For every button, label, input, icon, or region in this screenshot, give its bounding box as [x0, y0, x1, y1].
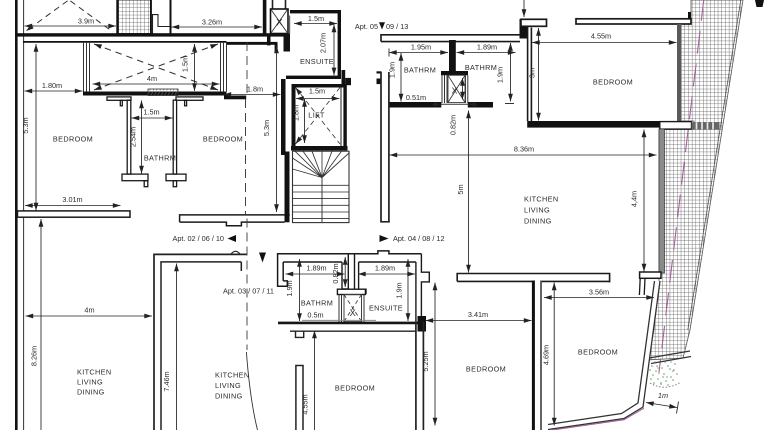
- svg-text:DINING: DINING: [215, 391, 243, 400]
- svg-text:1.89m: 1.89m: [306, 264, 326, 273]
- svg-text:LIVING: LIVING: [524, 206, 550, 215]
- svg-text:0.82m: 0.82m: [449, 115, 458, 135]
- svg-text:ENSUITE: ENSUITE: [300, 57, 334, 66]
- svg-text:1.9m: 1.9m: [395, 282, 404, 298]
- svg-text:8.36m: 8.36m: [514, 145, 534, 154]
- svg-text:0.82m: 0.82m: [331, 263, 340, 283]
- svg-text:3.01m: 3.01m: [62, 195, 82, 204]
- svg-text:4.69m: 4.69m: [542, 345, 551, 365]
- svg-text:1.9m: 1.9m: [388, 62, 397, 78]
- svg-text:X: X: [276, 18, 283, 29]
- svg-text:ENSUITE: ENSUITE: [369, 304, 403, 313]
- svg-text:3m: 3m: [528, 68, 537, 78]
- svg-text:BEDROOM: BEDROOM: [203, 135, 243, 144]
- svg-text:09 / 13: 09 / 13: [386, 22, 408, 31]
- svg-text:4m: 4m: [84, 306, 94, 315]
- svg-text:KITCHEN: KITCHEN: [215, 371, 249, 380]
- svg-text:DINING: DINING: [77, 388, 105, 397]
- svg-text:Apt. 05: Apt. 05: [355, 22, 378, 31]
- svg-text:1.89m: 1.89m: [477, 43, 497, 52]
- svg-text:1.80m: 1.80m: [42, 81, 62, 90]
- svg-text:Apt. 02 / 06 / 10: Apt. 02 / 06 / 10: [172, 234, 224, 243]
- svg-text:1.9m: 1.9m: [285, 280, 294, 296]
- svg-text:1.5m: 1.5m: [143, 108, 159, 117]
- svg-text:BATHRM: BATHRM: [404, 66, 436, 75]
- svg-text:5.25m: 5.25m: [421, 351, 430, 371]
- svg-text:2.54m: 2.54m: [129, 127, 138, 147]
- svg-text:5.3m: 5.3m: [262, 120, 271, 136]
- svg-text:4.55m: 4.55m: [301, 394, 310, 414]
- svg-text:X: X: [452, 86, 458, 96]
- svg-text:0.51m: 0.51m: [406, 93, 426, 102]
- svg-text:7.46m: 7.46m: [162, 371, 171, 391]
- svg-text:1.8m: 1.8m: [247, 85, 263, 94]
- svg-text:DINING: DINING: [524, 217, 552, 226]
- svg-text:Apt. 04 / 08 / 12: Apt. 04 / 08 / 12: [393, 234, 445, 243]
- svg-text:2.07m: 2.07m: [319, 33, 328, 53]
- svg-text:KITCHEN: KITCHEN: [524, 195, 558, 204]
- svg-text:BEDROOM: BEDROOM: [466, 365, 506, 374]
- svg-text:BATHRM: BATHRM: [465, 63, 497, 72]
- svg-text:8.26m: 8.26m: [30, 346, 39, 366]
- svg-text:1.5m: 1.5m: [309, 87, 325, 96]
- svg-text:4m: 4m: [147, 74, 157, 83]
- svg-text:BEDROOM: BEDROOM: [53, 135, 93, 144]
- svg-text:BEDROOM: BEDROOM: [593, 78, 633, 87]
- svg-text:BATHRM: BATHRM: [144, 154, 176, 163]
- svg-text:3.26m: 3.26m: [202, 18, 222, 27]
- svg-text:1.8m: 1.8m: [292, 105, 301, 121]
- svg-text:1.89m: 1.89m: [375, 264, 395, 273]
- svg-text:3.9m: 3.9m: [78, 17, 94, 26]
- svg-text:5.3m: 5.3m: [21, 117, 30, 133]
- svg-text:BEDROOM: BEDROOM: [335, 384, 375, 393]
- svg-text:X: X: [350, 308, 356, 318]
- svg-text:1m: 1m: [658, 391, 668, 400]
- svg-text:LIFT: LIFT: [308, 111, 325, 120]
- svg-text:4.55m: 4.55m: [591, 32, 611, 41]
- svg-text:0.5m: 0.5m: [307, 311, 323, 320]
- svg-text:KITCHEN: KITCHEN: [77, 368, 111, 377]
- svg-text:LIVING: LIVING: [215, 381, 241, 390]
- svg-text:1.5m: 1.5m: [181, 56, 190, 72]
- svg-text:4,4m: 4,4m: [630, 191, 639, 207]
- svg-text:3.56m: 3.56m: [589, 288, 609, 297]
- svg-text:1.5m: 1.5m: [308, 14, 324, 23]
- svg-text:BEDROOM: BEDROOM: [578, 348, 618, 357]
- svg-text:3.41m: 3.41m: [468, 310, 488, 319]
- svg-text:5m: 5m: [456, 184, 465, 194]
- svg-text:1.95m: 1.95m: [411, 43, 431, 52]
- svg-text:Apt. 03 / 07 / 11: Apt. 03 / 07 / 11: [223, 287, 274, 296]
- svg-text:BATHRM: BATHRM: [301, 299, 333, 308]
- svg-text:LIVING: LIVING: [77, 378, 103, 387]
